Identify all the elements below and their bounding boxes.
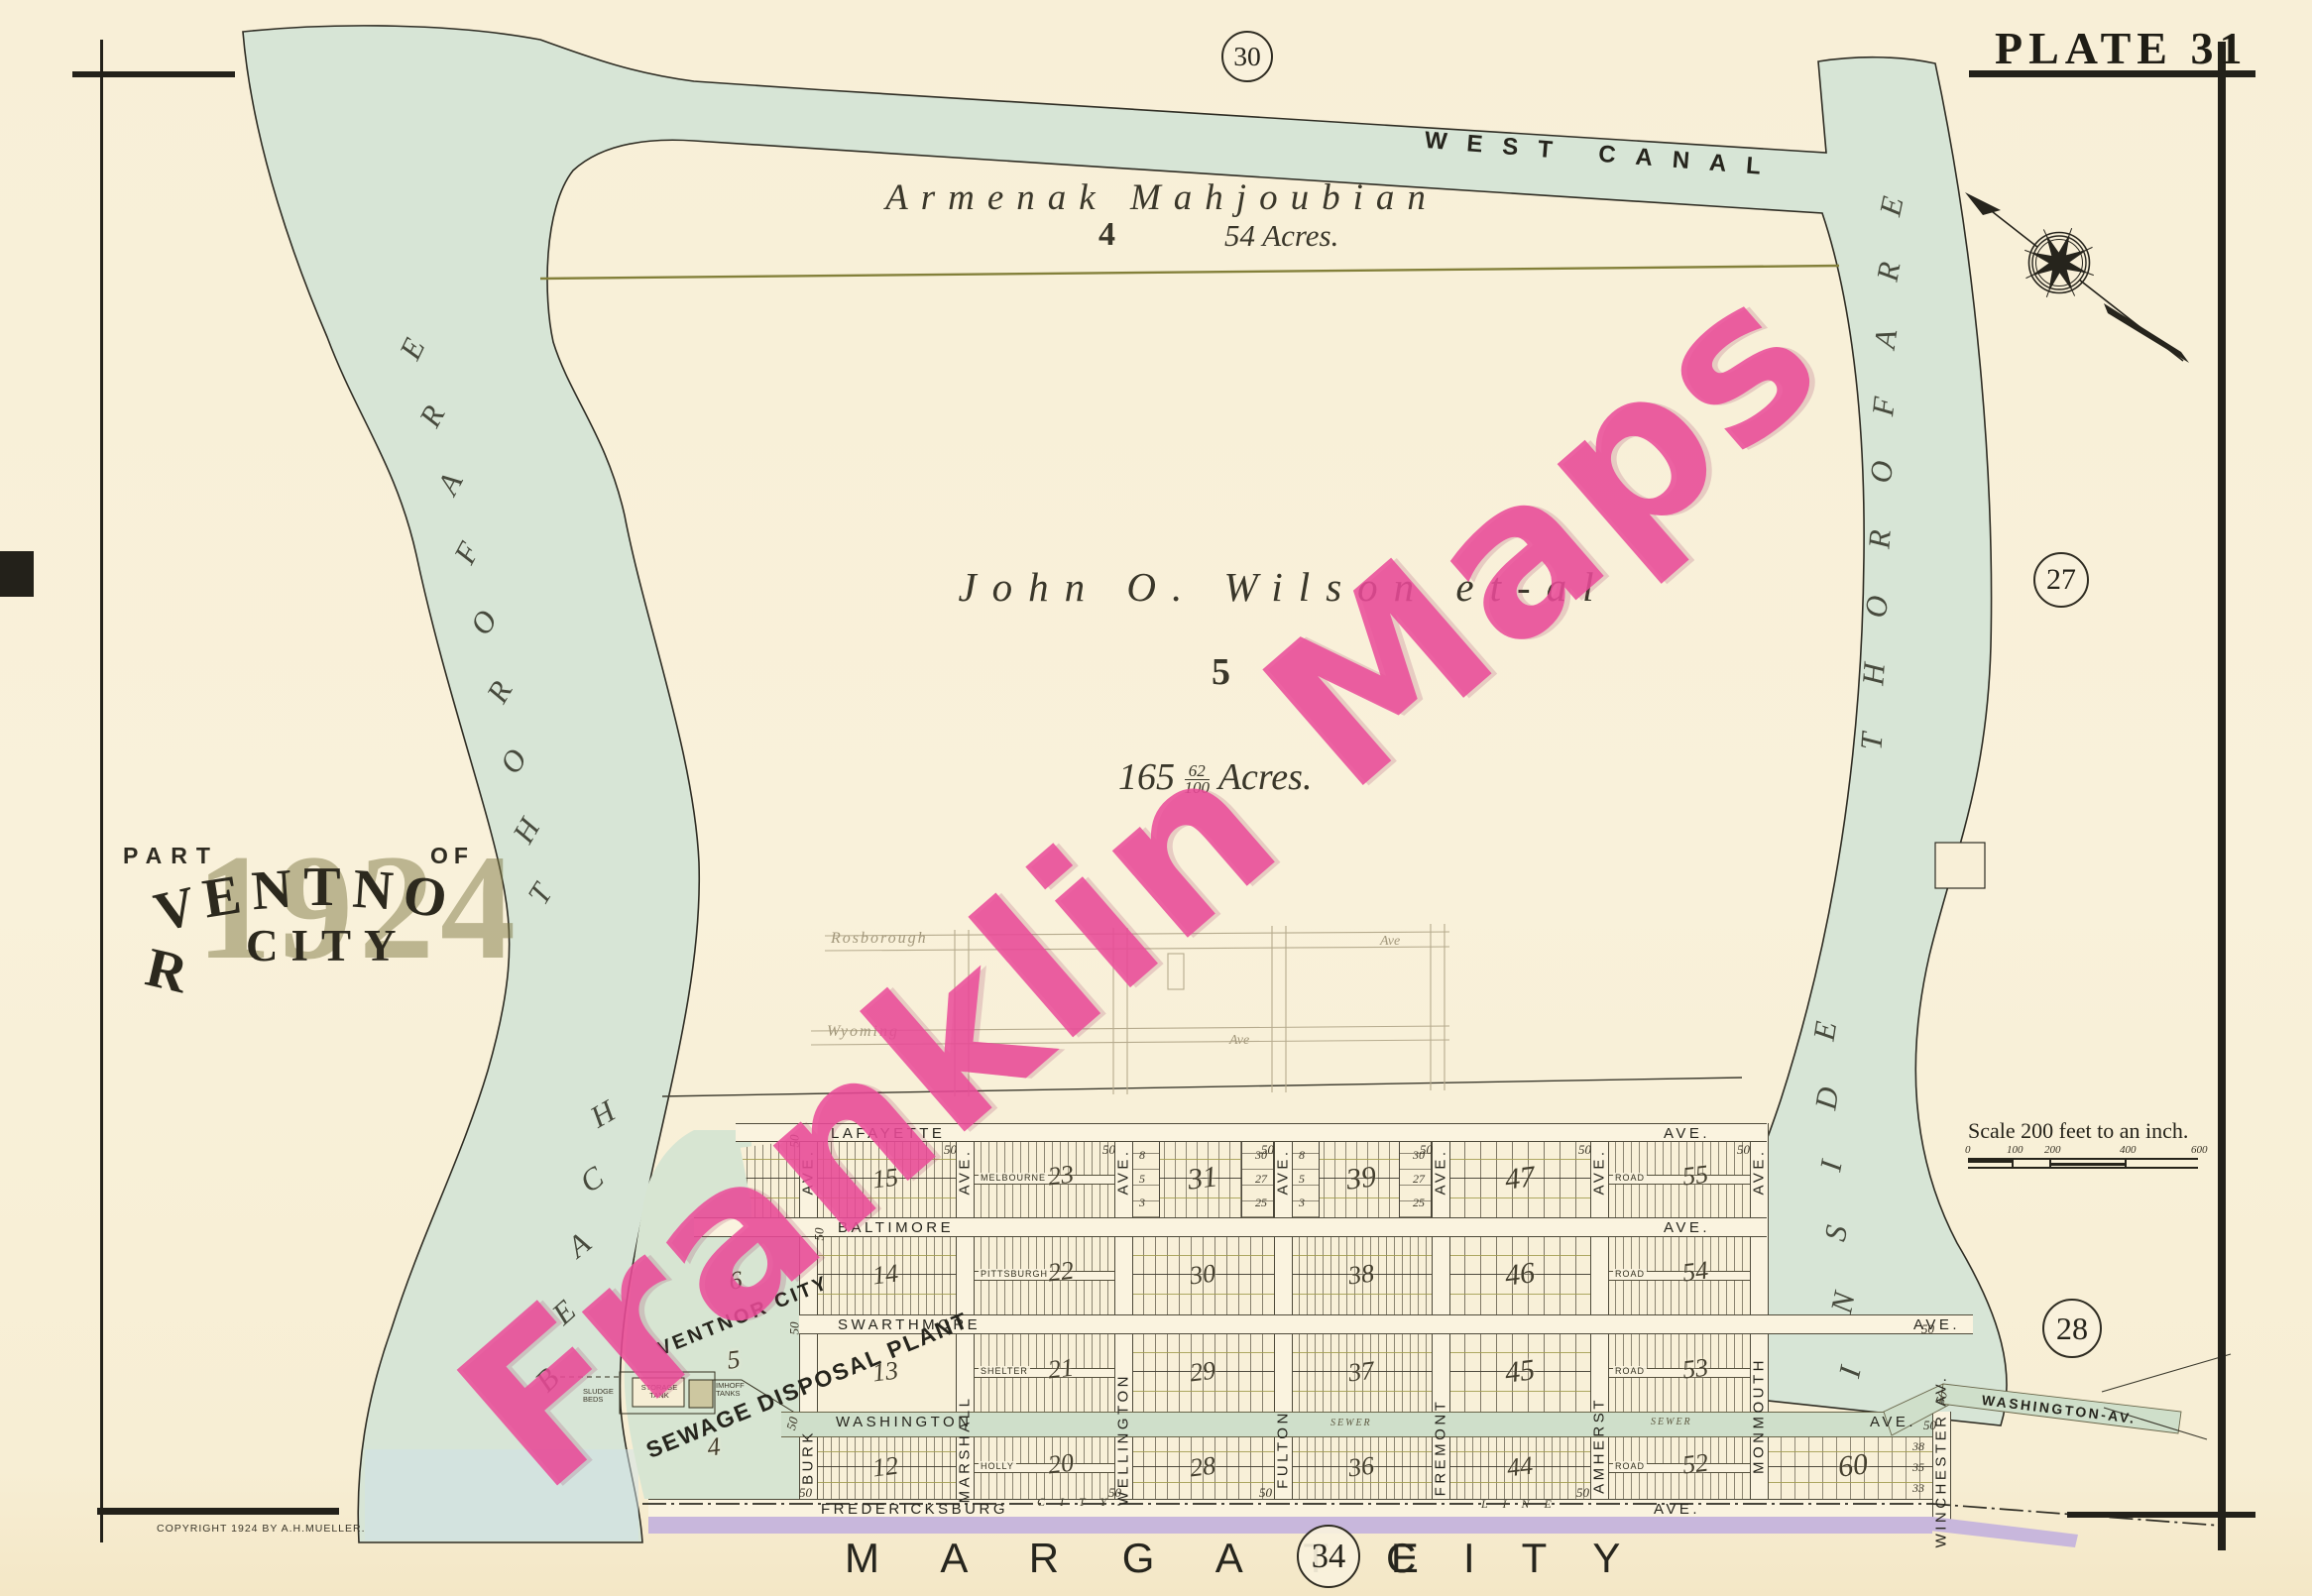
pencil-wyoming-ave: Ave xyxy=(1229,1033,1249,1049)
pencil-rosborough-ave: Ave xyxy=(1380,934,1400,950)
sewer-label-1: SEWER xyxy=(1330,1418,1372,1428)
plate-circle-30: 30 xyxy=(1221,31,1273,82)
scale-bar-tick2 xyxy=(2049,1160,2051,1167)
plate-number: PLATE 31 xyxy=(1995,22,2248,74)
city-line-purple-band xyxy=(648,1517,1932,1534)
street-name-4: FREMONT xyxy=(1433,1399,1449,1497)
street-ave-6: AVE. xyxy=(1751,1148,1768,1195)
width-label-15: 50 xyxy=(1923,1418,1936,1433)
scale-bar-fill xyxy=(1968,1160,2012,1163)
scale-tick-0: 0 xyxy=(1965,1144,1971,1156)
plate-circle-28: 28 xyxy=(2042,1299,2102,1358)
scale-tick-400: 400 xyxy=(2120,1144,2137,1156)
cartouche-letter-E: E xyxy=(199,862,246,931)
scale-bar xyxy=(1968,1158,2198,1169)
width-label-12: 50 xyxy=(1259,1485,1272,1501)
width-label-3: 50 xyxy=(1261,1142,1274,1158)
scale-bar-fill2 xyxy=(2049,1163,2125,1166)
neat-line-right xyxy=(2218,42,2226,1550)
city-line-word-line: L I N E xyxy=(1481,1497,1558,1512)
width-label-13: 50 xyxy=(1576,1485,1589,1501)
cartouche-letter-N: N xyxy=(250,857,294,924)
street-ave-5: AVE. xyxy=(1591,1148,1608,1195)
inside-letter-7: H xyxy=(1855,662,1892,687)
inside-letter-9: R xyxy=(1861,528,1898,549)
street-name-0: BURK xyxy=(800,1429,817,1485)
width-label-4: 50 xyxy=(1420,1142,1433,1158)
tract-owner-mahjoubian: Armenak Mahjoubian xyxy=(885,176,1439,219)
sewer-label-2: SEWER xyxy=(1651,1417,1692,1427)
inside-letter-10: O xyxy=(1863,459,1901,484)
title-cartouche: 1924 PART OF VENTNOR CITY xyxy=(111,833,488,981)
margate-city-word: C I T Y xyxy=(1386,1535,1638,1582)
street-ave-2: AVE. xyxy=(1115,1148,1132,1195)
corner-mark-top-left xyxy=(72,71,235,77)
tract-number-4: 4 xyxy=(1098,216,1115,254)
width-label-6: 50 xyxy=(1737,1142,1750,1158)
cartouche-letter-T: T xyxy=(303,855,340,919)
street-ave-4: AVE. xyxy=(1433,1148,1449,1195)
avenue-name-3: WASHINGTON xyxy=(836,1414,973,1430)
scale-tick-200: 200 xyxy=(2044,1144,2061,1156)
copyright-notice: COPYRIGHT 1924 BY A.H.MUELLER. xyxy=(157,1523,366,1535)
cartouche-letter-V: V xyxy=(149,874,202,945)
avenue-suffix-0: AVE. xyxy=(1664,1125,1710,1142)
street-name-5: AMHERST xyxy=(1591,1397,1608,1494)
inside-letter-11: F xyxy=(1865,396,1903,418)
scale-tick-600: 600 xyxy=(2191,1144,2208,1156)
corner-mark-bottom-right xyxy=(2067,1512,2255,1518)
street-name-6: MONMOUTH xyxy=(1751,1357,1768,1474)
corner-mark-bottom-left xyxy=(97,1508,339,1515)
road-line-ne xyxy=(2102,1354,2231,1392)
inside-letter-6: T xyxy=(1853,732,1890,751)
width-label-14: 50 xyxy=(1921,1321,1934,1337)
edge-index-tab xyxy=(0,551,34,597)
plate-circle-34: 34 xyxy=(1297,1525,1360,1588)
inside-letter-8: O xyxy=(1858,595,1895,620)
purple-band-slope xyxy=(1929,1517,2078,1547)
scale-bar-tick3 xyxy=(2125,1160,2127,1167)
cartouche-letter-N: N xyxy=(350,857,395,924)
avenue-suffix-3: AVE. xyxy=(1870,1414,1916,1430)
width-label-10: 50 xyxy=(799,1485,812,1501)
scale-tick-100: 100 xyxy=(2007,1144,2023,1156)
width-label-2: 50 xyxy=(1102,1142,1115,1158)
street-name-1: MARSHALL xyxy=(957,1396,974,1504)
avenue-suffix-4: AVE. xyxy=(1654,1501,1700,1518)
width-label-11: 50 xyxy=(1108,1485,1121,1501)
avenue-suffix-1: AVE. xyxy=(1664,1219,1710,1236)
neat-line-left xyxy=(100,40,103,1542)
cartouche-city-word: CITY xyxy=(246,920,409,971)
atlas-plate-map: 15MELBOURNE23853302725318533027253947ROA… xyxy=(0,0,2312,1596)
street-name-3: FULTON xyxy=(1275,1410,1292,1489)
plate-circle-27: 27 xyxy=(2033,552,2089,608)
city-line-word-city: C I T Y xyxy=(1037,1495,1112,1510)
street-ave-3: AVE. xyxy=(1275,1148,1292,1195)
avenue-name-4: FREDERICKSBURG xyxy=(821,1501,1008,1518)
width-label-5: 50 xyxy=(1578,1142,1591,1158)
scale-bar-tick1 xyxy=(2012,1160,2014,1167)
tract-acreage-mahjoubian: 54 Acres. xyxy=(1224,218,1338,254)
scale-title: Scale 200 feet to an inch. xyxy=(1968,1118,2188,1144)
